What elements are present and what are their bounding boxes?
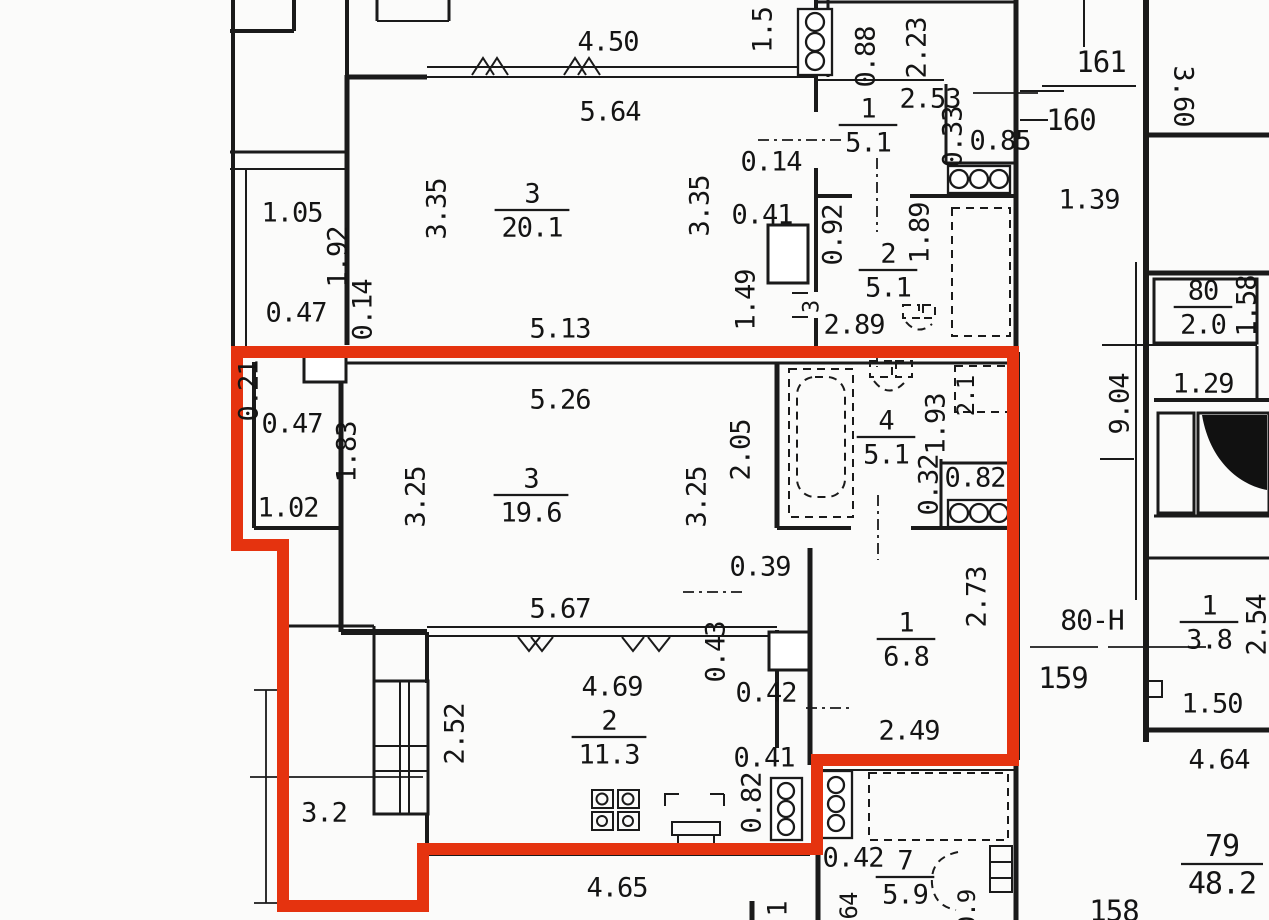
dim-label: 5.64 [579, 97, 640, 128]
dim-label: 80-H [1060, 604, 1123, 637]
dim-label: 1.92 [323, 226, 354, 287]
dim-label: 3.25 [401, 466, 432, 527]
dim-label: 0.33 [938, 106, 969, 167]
room-area-label: 16.8 [877, 608, 936, 673]
dim-label: 160 [1046, 103, 1095, 137]
toilet2-icon [903, 305, 919, 318]
room-number: 1 [1201, 591, 1216, 622]
dim-label: 1 [763, 901, 794, 916]
room-area-label: 319.6 [494, 464, 569, 529]
room-number: 79 [1205, 829, 1239, 864]
dim-label: 0.43 [701, 621, 732, 682]
dim-label: 3.60 [1168, 65, 1199, 126]
room-number: 1 [860, 94, 875, 125]
room-area-label: 802.0 [1174, 276, 1233, 341]
dim-label: 5.67 [529, 594, 590, 625]
dim-label: 159 [1038, 661, 1087, 695]
dim-label: 4.69 [581, 672, 642, 703]
dim-label: 4.64 [1188, 745, 1249, 776]
dim-label: 0.42 [735, 678, 796, 709]
dim-label: 1.02 [257, 493, 318, 524]
room-area: 19.6 [500, 498, 561, 529]
dim-label: 0.14 [348, 279, 379, 340]
room-area: 5.1 [865, 273, 911, 304]
dim-label: 2.54 [1242, 594, 1269, 655]
dim-label: 0.39 [729, 552, 790, 583]
counter-icon [869, 773, 1008, 840]
dim-label: 2.49 [878, 716, 939, 747]
dim-label: 1.49 [731, 269, 762, 330]
dim-label: 0.42 [822, 843, 883, 874]
dim-label: 9.04 [1105, 373, 1136, 434]
dim-label: 161 [1076, 45, 1125, 79]
dim-label: 64 [835, 892, 863, 919]
room-area-label: 13.8 [1180, 591, 1239, 656]
dim-label: 1.93 [921, 393, 952, 454]
room-area: 3.8 [1186, 625, 1232, 656]
dim-label: 2.52 [440, 703, 471, 764]
room-area: 5.9 [882, 880, 928, 911]
dim-label: 0.21 [234, 360, 265, 421]
room-number: 2 [601, 706, 616, 737]
dim-label: 3.35 [422, 178, 453, 239]
dim-label: 2.23 [902, 17, 933, 78]
dim-label: 0.14 [740, 147, 801, 178]
stair-sector-icon [1202, 415, 1267, 490]
dim-label: 2.73 [962, 566, 993, 627]
room-area: 2.0 [1180, 310, 1226, 341]
room-number: 7 [897, 846, 912, 877]
dim-label: 0.85 [969, 126, 1030, 157]
dim-label: 2.05 [726, 419, 757, 480]
floor-plan-svg: 4.505.641.50.882.232.531611603.600.330.8… [0, 0, 1269, 920]
room-area: 48.2 [1188, 867, 1256, 902]
dim-label: 4.65 [586, 873, 647, 904]
dim-label: 2.1 [952, 376, 980, 416]
dim-label: 0.47 [265, 298, 326, 329]
room-number: 80 [1188, 276, 1219, 307]
dim-label: 0.47 [261, 409, 322, 440]
dim-label: 1.39 [1058, 185, 1119, 216]
room-number: 3 [524, 179, 539, 210]
room-area: 5.1 [863, 440, 909, 471]
bathtub-icon [789, 369, 853, 517]
dim-label: 1.29 [1172, 369, 1233, 400]
dim-label: 0.41 [733, 743, 794, 774]
dim-label: 1.50 [1181, 689, 1242, 720]
room-area-label: 15.1 [839, 94, 898, 159]
dim-label: 5.26 [529, 385, 590, 416]
dim-label: 0.88 [851, 26, 882, 87]
stove-icon [592, 790, 639, 830]
dim-label: 5.13 [529, 314, 590, 345]
dim-label: 1.05 [261, 198, 322, 229]
room-area-label: 75.9 [876, 846, 935, 911]
room-number: 1 [898, 608, 913, 639]
room-area: 5.1 [845, 128, 891, 159]
floor-plan-canvas: 4.505.641.50.882.232.531611603.600.330.8… [0, 0, 1269, 920]
room-number: 2 [880, 239, 895, 270]
bathtub-inner-icon [797, 377, 845, 497]
dim-label: 0.82 [737, 772, 768, 833]
room-area-label: 7948.2 [1181, 829, 1263, 902]
room-area: 11.3 [578, 740, 639, 771]
dim-label: 3.35 [685, 175, 716, 236]
dim-label: 0.41 [731, 200, 792, 231]
room-area: 20.1 [501, 213, 562, 244]
dim-label: 3 [800, 301, 825, 313]
dim-label: 0.32 [914, 454, 945, 515]
dimension-labels-layer: 4.505.641.50.882.232.531611603.600.330.8… [234, 7, 1269, 920]
dim-label: 1.83 [332, 421, 363, 482]
dim-label: 4.50 [577, 27, 638, 58]
dim-label: 1.89 [905, 202, 936, 263]
room-number: 4 [878, 406, 893, 437]
room-area-label: 320.1 [495, 179, 570, 244]
room-number: 3 [523, 464, 538, 495]
dim-label: 158 [1089, 894, 1138, 920]
walls-thick [341, 0, 1146, 742]
dim-label: 0.9 [953, 890, 981, 920]
dim-label: 1.5 [748, 7, 779, 53]
dim-label: 2.89 [823, 310, 884, 341]
dim-label: 1.58 [1232, 275, 1263, 336]
room-area: 6.8 [883, 642, 929, 673]
room-area-label: 45.1 [857, 406, 916, 471]
dim-label: 3.25 [682, 466, 713, 527]
wardrobe-icon [952, 208, 1010, 336]
dim-label: 0.82 [944, 463, 1005, 494]
dim-label: 3.2 [301, 798, 347, 829]
room-area-label: 211.3 [572, 706, 647, 771]
dim-label: 0.92 [818, 204, 849, 265]
